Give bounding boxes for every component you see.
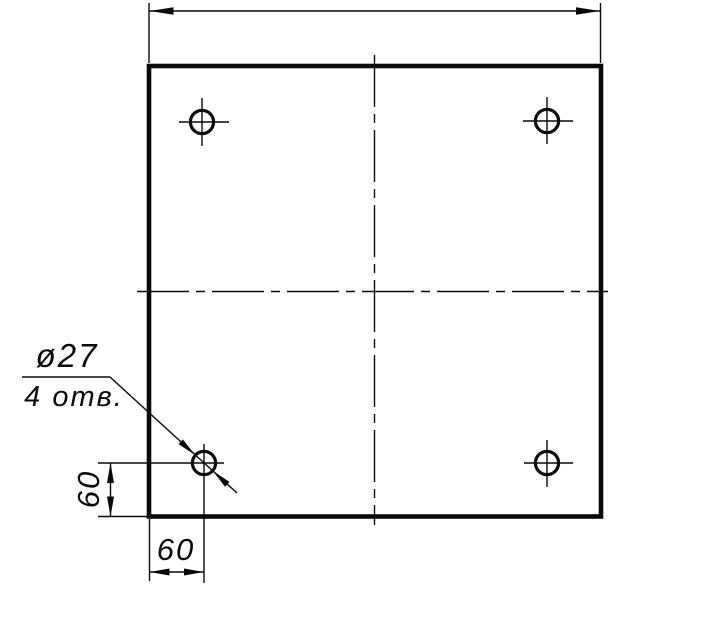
leader-note-diameter-text: ø27 bbox=[36, 337, 99, 374]
leader-note-count-text: 4 отв. bbox=[24, 381, 124, 413]
hole-bottom-right bbox=[524, 440, 573, 487]
drawing-canvas: 60 60 ø27 4 отв. bbox=[0, 0, 713, 631]
arrowhead-left bbox=[150, 569, 170, 576]
dimension-bottom-60: 60 bbox=[150, 519, 205, 581]
dimension-left-60: 60 bbox=[71, 463, 147, 517]
dimension-top-width bbox=[149, 3, 601, 63]
arrowhead-left bbox=[150, 7, 174, 15]
leader-arrowhead-lower bbox=[213, 471, 230, 487]
arrowhead-up bbox=[107, 463, 114, 483]
leader-note-hole-diameter: ø27 4 отв. bbox=[22, 337, 237, 493]
arrowhead-right bbox=[576, 7, 600, 15]
dimension-value-vertical-60: 60 bbox=[71, 470, 106, 508]
arrowhead-down bbox=[107, 497, 114, 517]
hole-top-right bbox=[523, 97, 573, 144]
arrowhead-right bbox=[184, 569, 204, 576]
technical-drawing: 60 60 ø27 4 отв. bbox=[0, 0, 713, 631]
dimension-value-horizontal-60: 60 bbox=[157, 532, 195, 567]
leader-arrowhead-upper bbox=[179, 439, 196, 455]
hole-top-left bbox=[179, 98, 229, 146]
